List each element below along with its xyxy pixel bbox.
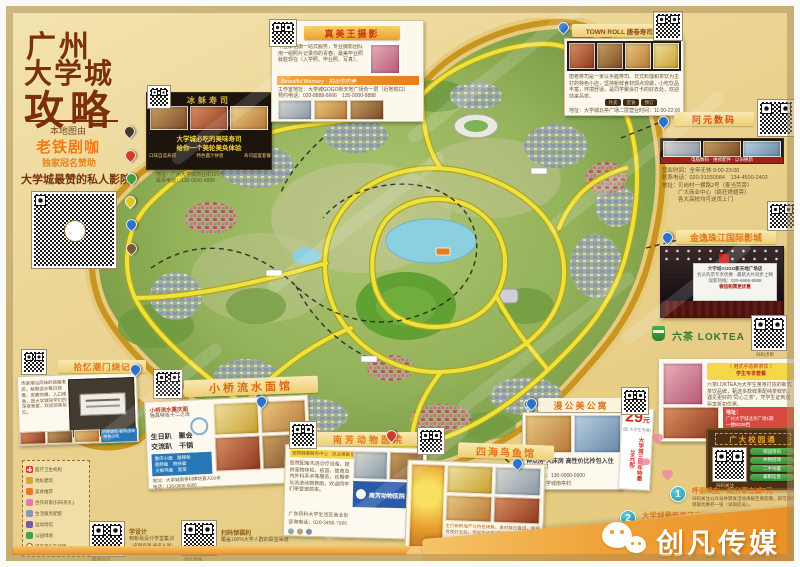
- map-legend: 医疗卫生机构 地标建筑 美食推荐 合作商家(扫码有礼) 生活服务配套 运动场馆 …: [22, 460, 90, 557]
- photo-studio-band2-text: Beautiful Memory · 拍出你的美: [277, 77, 356, 85]
- ayuan-title: 阿元数码: [692, 113, 736, 126]
- heart-icon: [641, 459, 648, 466]
- tea-cup-icon: [652, 326, 665, 341]
- legend-row: 公园绿地: [26, 530, 86, 541]
- apartment-qr-code: [622, 388, 648, 414]
- campus-pass-badge-3: 二手闲置: [750, 465, 794, 472]
- campus-pass-badge-2: 失物招领: [750, 457, 794, 464]
- campus-pass-qr-code: [713, 448, 746, 481]
- shaoji-title: 拾忆潮门烧记: [73, 361, 130, 373]
- photo-studio-title: 真美王摄影: [324, 27, 379, 40]
- loktea-addr-label: 地址：: [726, 409, 792, 416]
- cinema-photo: 大学城GOGO新天地广场店 会员购票专享优惠 · 最新大片同步上映 观影热线：0…: [660, 246, 784, 318]
- ayuan-address-label: 地址：: [662, 183, 679, 190]
- food-icon: [26, 488, 33, 495]
- welfare-caption: 创凡传媒: [184, 557, 202, 561]
- legend-label: 美食推荐: [35, 489, 53, 495]
- townroll-body: 唐卷寿司是一家以手握寿司、日式料理和茶饮为主打的特色小店，坚持新鲜食材现点现做，…: [569, 74, 681, 98]
- noodle-menu-3: 尖椒鸡面 冒菜: [155, 466, 209, 474]
- photo-studio-phone: 预约电话：020-8888-6666 135-0000-8888: [278, 93, 420, 100]
- guide-map-poster: { "title": { "l1": "广州", "l2": "大学城", "l…: [0, 0, 800, 567]
- ayuan-qr-code: [758, 100, 794, 136]
- cinema-line-2: 会员购票专享优惠 · 最新大片同步上映: [697, 272, 773, 278]
- shaoji-caption: 招牌烧鸡·秘制卤味·特色小吃: [101, 428, 137, 442]
- legend-row: 美食推荐: [26, 486, 86, 497]
- welfare-line2: 覆盖100%大学人群的联盟渠道: [221, 537, 313, 544]
- shaoji-qr-code: [22, 350, 46, 374]
- title-sub2: 独家冠名赞助: [42, 156, 96, 169]
- ayuan-qr-code-2: [768, 202, 794, 230]
- cinema-title: 金逸珠江国际影城: [690, 231, 762, 244]
- sponsor-qr-code: [32, 192, 116, 268]
- sponsor-name: 老铁剧咖: [36, 136, 100, 157]
- townroll-badge-3: 预订: [641, 99, 657, 106]
- campus-pass-title: 广大校园通: [729, 434, 777, 445]
- campus-pass-badge-1: 校园资讯: [750, 448, 794, 455]
- legend-label: 地标建筑: [35, 478, 53, 484]
- loktea-qr-caption: 扫码点单: [756, 352, 774, 358]
- sushi-col3: 寿司盛宴套餐: [244, 153, 271, 159]
- campus-pass-card: 广大校园通 校园资讯 失物招领 二手闲置 兼职信息 扫码关注: [706, 428, 794, 490]
- ayuan-photo-caption: 电脑数码 · 维修配件 · 以旧换新: [661, 157, 783, 163]
- apartment-title-band: 漫公美公寓: [538, 398, 624, 412]
- partner-icon: [26, 499, 33, 506]
- apartment-price-strip: 29元 (起·大学生专属) 大学城三周年特惠29元起!: [618, 407, 654, 491]
- legend-label: 医疗卫生机构: [35, 467, 62, 473]
- title-sub3: 大学城最赞的私人影院: [21, 171, 131, 187]
- noodle-menu-block: 重庆小面 酸辣粉 肥肠面 豌杂面 尖椒鸡面 冒菜: [151, 452, 212, 477]
- apartment-price-note: (起·大学生专属): [622, 426, 652, 434]
- apartment-title: 漫公美公寓: [553, 399, 608, 412]
- title-underline: [26, 120, 118, 122]
- cinema-line-1: 大学城GOGO新天地广场店: [697, 266, 773, 272]
- townroll-address: 地址：大学城北亭广场二层: [569, 108, 635, 115]
- loktea-body: 六茶LOKTEA为大学生量身打造的新式茶饮品牌，甄选多款鲜果配纯茶鲜奶，遇见更好…: [707, 382, 794, 406]
- fish-qr-code: [418, 428, 444, 454]
- medical-icon: [26, 466, 33, 473]
- sushi-col1: 口味自选寿司: [149, 153, 176, 159]
- legend-label: 运动场馆: [35, 522, 53, 528]
- hospital-title-band: 南芳动物医院: [312, 432, 426, 446]
- noodle-stamp-icon: [190, 417, 209, 436]
- townroll-badge-2: 堂食: [623, 99, 639, 106]
- noodle-title: 小桥流水面馆: [209, 377, 294, 396]
- welfare-line1: 扫码领福利: [221, 528, 313, 537]
- brand-name: 创凡传媒: [656, 522, 780, 561]
- townroll-card: 唐卷寿司是一家以手握寿司、日式料理和茶饮为主打的特色小店，坚持新鲜食材现点现做，…: [564, 38, 684, 116]
- portrait-photo: [369, 43, 401, 75]
- photo-studio-title-band: 真美王摄影: [304, 26, 400, 40]
- cinema-line-3: 观影热线：020-6666-8888: [697, 278, 773, 284]
- campus-pass-badge-4: 兼职信息: [750, 474, 794, 481]
- photo-studio-qr-code: [270, 20, 296, 46]
- noodle-intro2: 独具特色十二之选: [150, 412, 190, 420]
- promo-head-1: 呼朋唤友一起分享立减7元: [692, 486, 794, 496]
- townroll-badge-1: 外卖: [605, 99, 621, 106]
- design-school-line2: 到新易设计学堂集训: [129, 536, 176, 543]
- townroll-qr-code: [654, 12, 682, 40]
- ayuan-photo-band: 电脑数码 · 维修配件 · 以旧换新: [660, 138, 784, 164]
- hospital-qr-code: [290, 422, 316, 448]
- legend-label: 生活服务配套: [35, 511, 62, 517]
- cinema-title-band: 金逸珠江国际影城: [676, 230, 776, 244]
- design-school-line1: 学设计: [129, 527, 176, 536]
- sushi-phone: 联系电话：136-0000-8888: [156, 178, 271, 185]
- paw-icon: [356, 489, 366, 499]
- ayuan-phone: 联系电话：020-31030084 134-4500-2402: [662, 175, 794, 182]
- loktea-banner2: 学生专享套餐: [707, 370, 794, 377]
- apartment-price-unit: 元: [643, 417, 650, 424]
- ayuan-title-band: 阿元数码: [674, 112, 754, 126]
- legend-row: 生活服务配套: [26, 508, 86, 519]
- legend-row: 医疗卫生机构: [26, 464, 86, 475]
- heart-icon: [663, 471, 673, 481]
- design-school-caption: 新易设计: [92, 557, 110, 561]
- sport-icon: [26, 521, 33, 528]
- park-icon: [26, 532, 33, 539]
- hospital-body: 医院配备先进诊疗设备，提供宠物体检、疫苗、绝育及内外科手术等服务，长期参与流浪动…: [289, 460, 352, 510]
- wechat-icon: [602, 520, 650, 561]
- sushi-col2: 特色酱汁拼盘: [197, 153, 224, 159]
- loktea-title: 六茶 LOKTEA: [672, 328, 745, 343]
- promo-number-1: 1: [670, 486, 686, 502]
- hospital-logo-text: 南芳动物医院: [369, 490, 405, 500]
- sushi-slogan2: 给你一个美轮美奂体验: [147, 142, 271, 152]
- legend-row: 合作商家(扫码有礼): [26, 497, 86, 508]
- loktea-qr-code: [752, 316, 786, 350]
- campus-pass-title-band: 广大校园通: [715, 433, 791, 445]
- noodle-tag2: 交流趴 干锅: [151, 441, 193, 453]
- cinema-screen: 大学城GOGO新天地广场店 会员购票专享优惠 · 最新大片同步上映 观影热线：0…: [693, 263, 777, 301]
- poster-background: 广州 大学城 攻略 本地图由 老铁剧咖 独家冠名赞助 大学城最赞的私人影院 冰稣…: [6, 6, 794, 561]
- landmark-icon: [26, 477, 33, 484]
- service-icon: [26, 510, 33, 517]
- photo-studio-body: 毕业季拍摄一站式服务，专业摄影团队用一组照片记录你的青春，最美毕业照就趁现在（入…: [278, 44, 366, 74]
- cinema-seats: [661, 301, 783, 317]
- loktea-banner1: （ 港式手造新茶饮 ）: [707, 363, 794, 370]
- sushi-qr-code: [148, 86, 170, 108]
- photo-studio-band2: Beautiful Memory · 拍出你的美: [277, 76, 419, 85]
- cinema-logo-tag: [719, 254, 729, 263]
- loktea-banner: （ 港式手造新茶饮 ） 学生专享套餐: [707, 363, 794, 380]
- cinema-line-4: 微信购票更优惠: [697, 284, 773, 290]
- legend-row: 运动场馆: [26, 519, 86, 530]
- noodle-qr-code: [154, 370, 182, 398]
- legend-label: 公园绿地: [35, 533, 53, 539]
- legend-row: 地标建筑: [26, 475, 86, 486]
- legend-label: 合作商家(扫码有礼): [35, 500, 74, 506]
- fish-title: 四海鸟鱼馆: [476, 443, 536, 460]
